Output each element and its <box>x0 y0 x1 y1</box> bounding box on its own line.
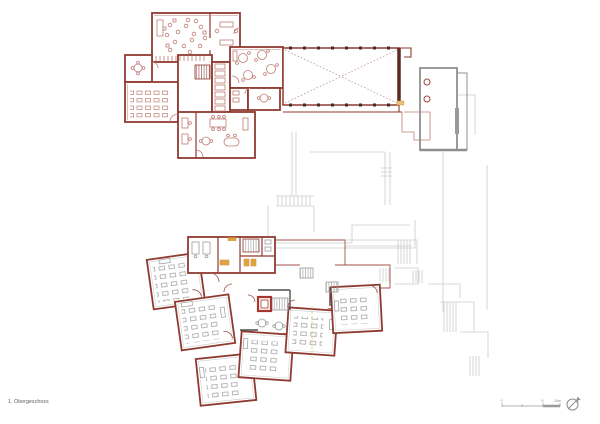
annex-circle-2 <box>424 96 430 102</box>
wc-accent-2 <box>251 259 256 266</box>
classroom-5 <box>285 305 337 355</box>
floor-label: 1. Obergeschoss <box>8 399 49 405</box>
scale-label-10m: 10m <box>554 399 561 403</box>
upper-cluster <box>125 13 430 158</box>
hall <box>283 47 430 141</box>
round-table-room <box>248 88 280 110</box>
classroom-2 <box>175 294 235 350</box>
upper-desk-grid <box>130 88 170 118</box>
north-arrow-icon <box>567 397 581 410</box>
stair-run-2 <box>300 268 313 278</box>
hall-accent <box>397 101 404 105</box>
bench-accent <box>220 260 229 265</box>
north-arrow-head <box>576 397 580 401</box>
stair-run-3 <box>326 282 338 292</box>
scale-bar: 0 5 10m <box>501 399 562 407</box>
stair-run-1 <box>272 298 288 310</box>
classroom-6 <box>331 285 382 334</box>
small-meeting-room <box>125 55 152 82</box>
hall-step-outline <box>402 112 430 140</box>
annex-wall-fill <box>455 108 459 134</box>
annex-outline <box>420 68 457 150</box>
ghost-paths <box>268 95 475 312</box>
annex-circle-1 <box>424 79 430 85</box>
classroom-4 <box>238 330 293 381</box>
annex-building <box>420 68 467 150</box>
floorplan-canvas: 0 5 10m 1. Obergeschoss <box>0 0 600 424</box>
core-stair <box>195 65 210 79</box>
service-block <box>188 237 275 273</box>
wc-accent-1 <box>244 259 249 266</box>
elevator-core <box>258 297 271 311</box>
group-table-2 <box>275 322 283 330</box>
lower-walls <box>147 237 382 406</box>
scale-label-5: 5 <box>542 399 544 403</box>
scale-label-0: 0 <box>501 399 503 403</box>
group-table-1 <box>258 319 266 327</box>
shelf-accent <box>228 238 236 241</box>
ghost-terraces <box>380 165 488 376</box>
ghost-upper-wing <box>345 240 417 264</box>
lower-cluster <box>147 237 390 406</box>
floorplan-drawing: 0 5 10m <box>0 0 600 424</box>
upper-walls <box>125 13 283 158</box>
